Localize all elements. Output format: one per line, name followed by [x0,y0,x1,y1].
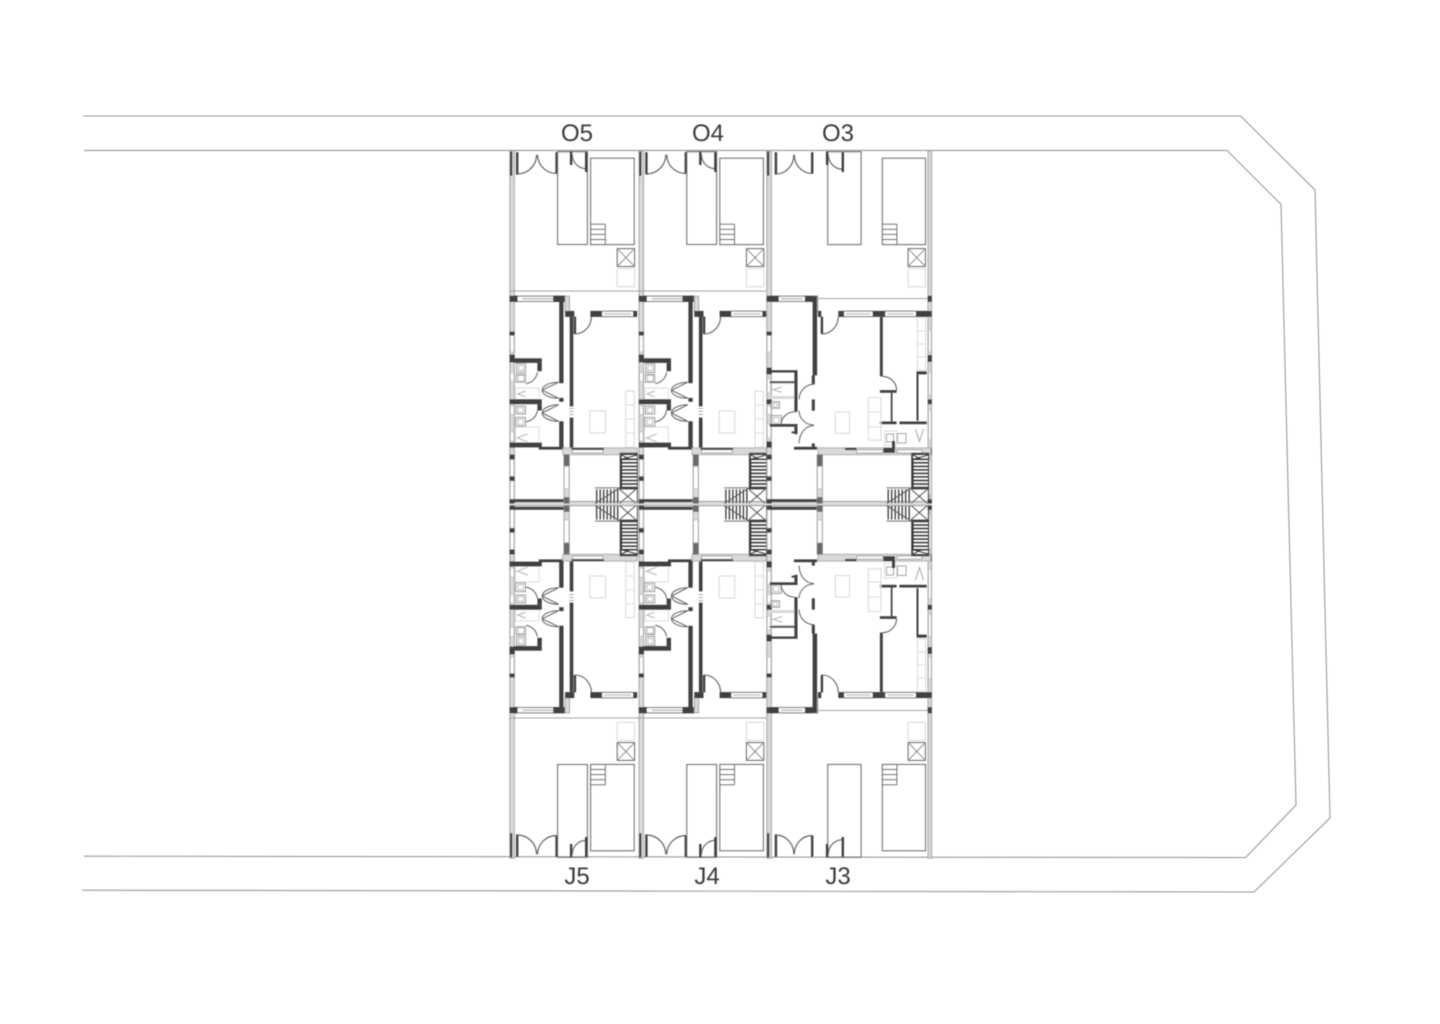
svg-text:J4: J4 [694,863,719,890]
svg-text:J3: J3 [825,863,850,890]
svg-text:O5: O5 [561,120,593,147]
svg-text:O3: O3 [822,120,854,147]
svg-text:O4: O4 [692,120,724,147]
svg-text:J5: J5 [564,863,589,890]
